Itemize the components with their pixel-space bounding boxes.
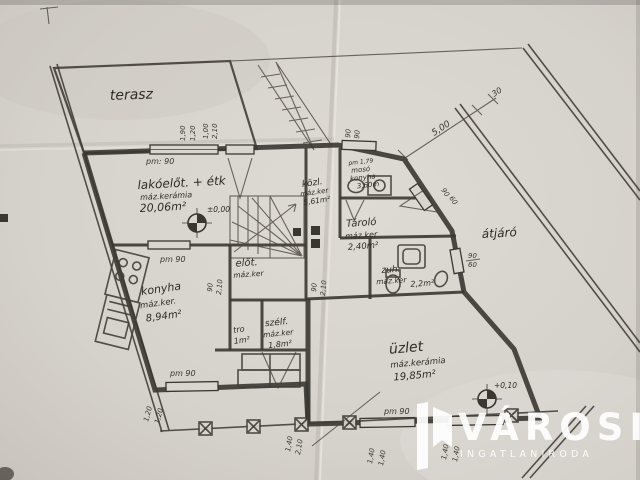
dim-d1a: 1,00 [202,123,210,139]
floorplan-drawing: terasz lakóelőt. + étk máz.kerámia 20,06… [0,0,640,480]
photo-edge-top [0,0,640,5]
dim-kdoor-b: 2,10 [215,278,224,295]
dim-moso-b: 90 [353,129,362,139]
dim-moso-a: 90 [344,128,353,138]
dim-door-e-b: 60 [468,261,477,269]
room-label-terasz: terasz [110,86,154,104]
dim-kdoor-a: 90 [206,282,215,292]
watermark-subtitle: INGATLANIRODA [460,449,593,460]
room-area-zuh: 2,2m² [410,278,435,289]
room-label-uzlet: üzlet [388,339,424,358]
room-label-elot: előt. [235,256,258,270]
dim-w1b: 1,20 [189,125,197,141]
room-label-tarolo: Tároló [346,216,377,230]
level-text-main: ±0,00 [207,205,230,214]
dim-edoor-a: 90 [310,282,319,292]
room-area-lakoelot: 20,06m² [139,200,187,215]
room-label-atjaro: átjáró [481,225,517,241]
floorplan-photo: terasz lakóelőt. + étk máz.kerámia 20,06… [0,0,640,480]
dim-pm90-bottomright: pm 90 [383,407,410,416]
room-label-tro: tro [233,324,246,335]
dim-pm90-bottomleft: pm 90 [169,369,196,378]
watermark-brand: VÁROSI [458,405,640,449]
dim-door-e-a: 90 [468,252,477,260]
dim-d1b: 2,10 [211,123,219,139]
dim-pm90-kitchen: pm 90 [159,255,186,264]
level-text-shop: +0,10 [494,381,517,390]
room-label-zuh: zuh. [380,265,401,276]
dim-w1a: 1,90 [179,125,187,141]
dim-edoor-b: 2,10 [319,279,328,296]
dim-pm90-top: pm: 90 [145,157,174,166]
